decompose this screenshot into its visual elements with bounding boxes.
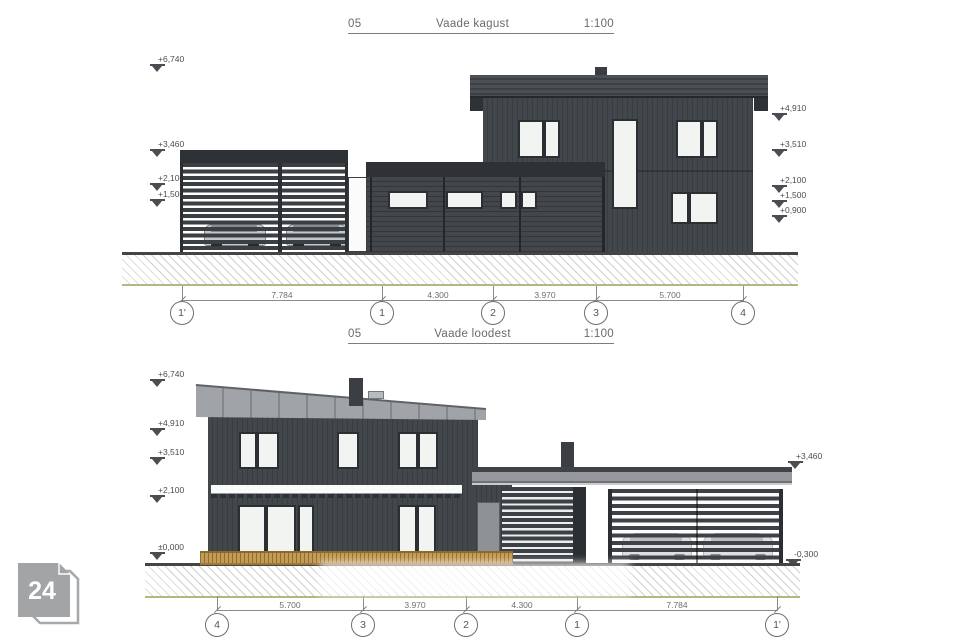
side-door <box>348 177 367 252</box>
level-marker: +6,740 <box>150 370 196 381</box>
carport-slats <box>608 489 783 563</box>
dimension-label: 7.784 <box>271 290 292 300</box>
level-triangle-icon <box>772 215 787 217</box>
level-marker: -0,300 <box>786 550 832 561</box>
level-triangle-icon <box>772 149 787 151</box>
sheet-number: 05 <box>348 18 361 30</box>
sheet-number: 05 <box>348 328 361 340</box>
eave-corner <box>470 98 483 111</box>
passage-gap <box>586 489 608 563</box>
dimension-label: 5.700 <box>659 290 680 300</box>
level-marker: +1,500 <box>772 191 818 202</box>
level-marker: +2,100 <box>772 176 818 187</box>
chimney <box>561 442 574 468</box>
slat-overlay <box>180 163 348 252</box>
window <box>676 120 718 158</box>
watermark-smudge <box>320 562 630 596</box>
level-marker: +3,510 <box>772 140 818 151</box>
sliding-door <box>238 505 296 556</box>
level-marker: +0,900 <box>772 206 818 217</box>
roof-vent <box>368 391 384 399</box>
level-marker: +4,910 <box>150 419 196 430</box>
wall-joint <box>370 177 372 252</box>
carport-slats <box>180 163 348 252</box>
window <box>239 432 279 469</box>
wall-joint <box>602 177 605 252</box>
carport-post <box>573 487 586 563</box>
dimension-line <box>217 610 777 611</box>
canopy-shadow <box>211 494 462 498</box>
window <box>398 432 438 469</box>
bottom-view-title-row: 05 Vaade loodest 1:100 <box>348 328 614 344</box>
carport-post <box>180 163 183 252</box>
level-marker: +6,740 <box>150 55 196 66</box>
ground-hatch <box>122 252 798 286</box>
canopy-band <box>211 485 462 494</box>
carport-post <box>608 489 612 563</box>
grid-bubble: 1' <box>170 301 194 325</box>
dimension-label: 4.300 <box>511 600 532 610</box>
dimension-label: 5.700 <box>279 600 300 610</box>
roof <box>470 75 768 98</box>
view-scale: 1:100 <box>584 18 614 30</box>
level-marker: +3,510 <box>150 448 196 459</box>
window <box>337 432 359 469</box>
wall-joint <box>519 177 521 252</box>
view-scale: 1:100 <box>584 328 614 340</box>
grid-bubble: 3 <box>584 301 608 325</box>
terrace-door <box>398 505 436 556</box>
logo-24-badge: 24 <box>12 557 86 633</box>
grid-bubble: 2 <box>454 613 478 637</box>
carport-post <box>696 489 698 563</box>
view-title: Vaade kagust <box>436 18 509 30</box>
window <box>518 120 560 158</box>
grid-bubble: 1 <box>565 613 589 637</box>
window <box>388 191 428 209</box>
dimension-label: 4.300 <box>427 290 448 300</box>
level-triangle-icon <box>150 199 165 201</box>
level-triangle-icon <box>150 183 165 185</box>
level-triangle-icon <box>150 552 165 554</box>
level-marker: ±0,000 <box>150 543 196 554</box>
grid-bubble: 4 <box>731 301 755 325</box>
level-triangle-icon <box>772 113 787 115</box>
level-triangle-icon <box>150 379 165 381</box>
grid-bubble: 4 <box>205 613 229 637</box>
window <box>298 505 314 556</box>
grid-bubble: 2 <box>481 301 505 325</box>
level-triangle-icon <box>788 461 803 463</box>
drawing-sheet: 05 Vaade kagust 1:100 +6,740 +3,460 +2,1… <box>0 0 960 640</box>
top-view-title-row: 05 Vaade kagust 1:100 <box>348 18 614 34</box>
level-marker: +2,100 <box>150 486 196 497</box>
eave-corner <box>754 98 768 111</box>
carport-post <box>779 489 783 563</box>
level-triangle-icon <box>786 559 801 561</box>
dimension-label: 7.784 <box>666 600 687 610</box>
view-title: Vaade loodest <box>434 328 511 340</box>
level-triangle-icon <box>150 457 165 459</box>
dimension-label: 3.970 <box>534 290 555 300</box>
dimension-label: 3.970 <box>404 600 425 610</box>
window <box>671 192 718 224</box>
window <box>500 191 517 209</box>
level-marker: +3,460 <box>788 452 834 463</box>
window <box>446 191 483 209</box>
fascia-band <box>366 162 605 177</box>
window <box>521 191 537 209</box>
carport-roof <box>472 467 792 485</box>
window <box>612 119 638 209</box>
chimney <box>349 378 363 406</box>
badge-label: 24 <box>28 577 56 605</box>
level-triangle-icon <box>772 185 787 187</box>
level-triangle-icon <box>150 495 165 497</box>
carport-post <box>345 163 348 252</box>
dimension-line <box>182 300 743 301</box>
grid-bubble: 3 <box>351 613 375 637</box>
wall-siding <box>366 177 605 252</box>
grid-bubble: 1' <box>765 613 789 637</box>
carport-post <box>278 163 282 252</box>
level-triangle-icon <box>150 64 165 66</box>
carport-fascia <box>180 150 348 163</box>
level-triangle-icon <box>772 200 787 202</box>
wall-joint <box>443 177 445 252</box>
level-triangle-icon <box>150 428 165 430</box>
level-marker: +4,910 <box>772 104 818 115</box>
level-triangle-icon <box>150 149 165 151</box>
grid-bubble: 1 <box>370 301 394 325</box>
